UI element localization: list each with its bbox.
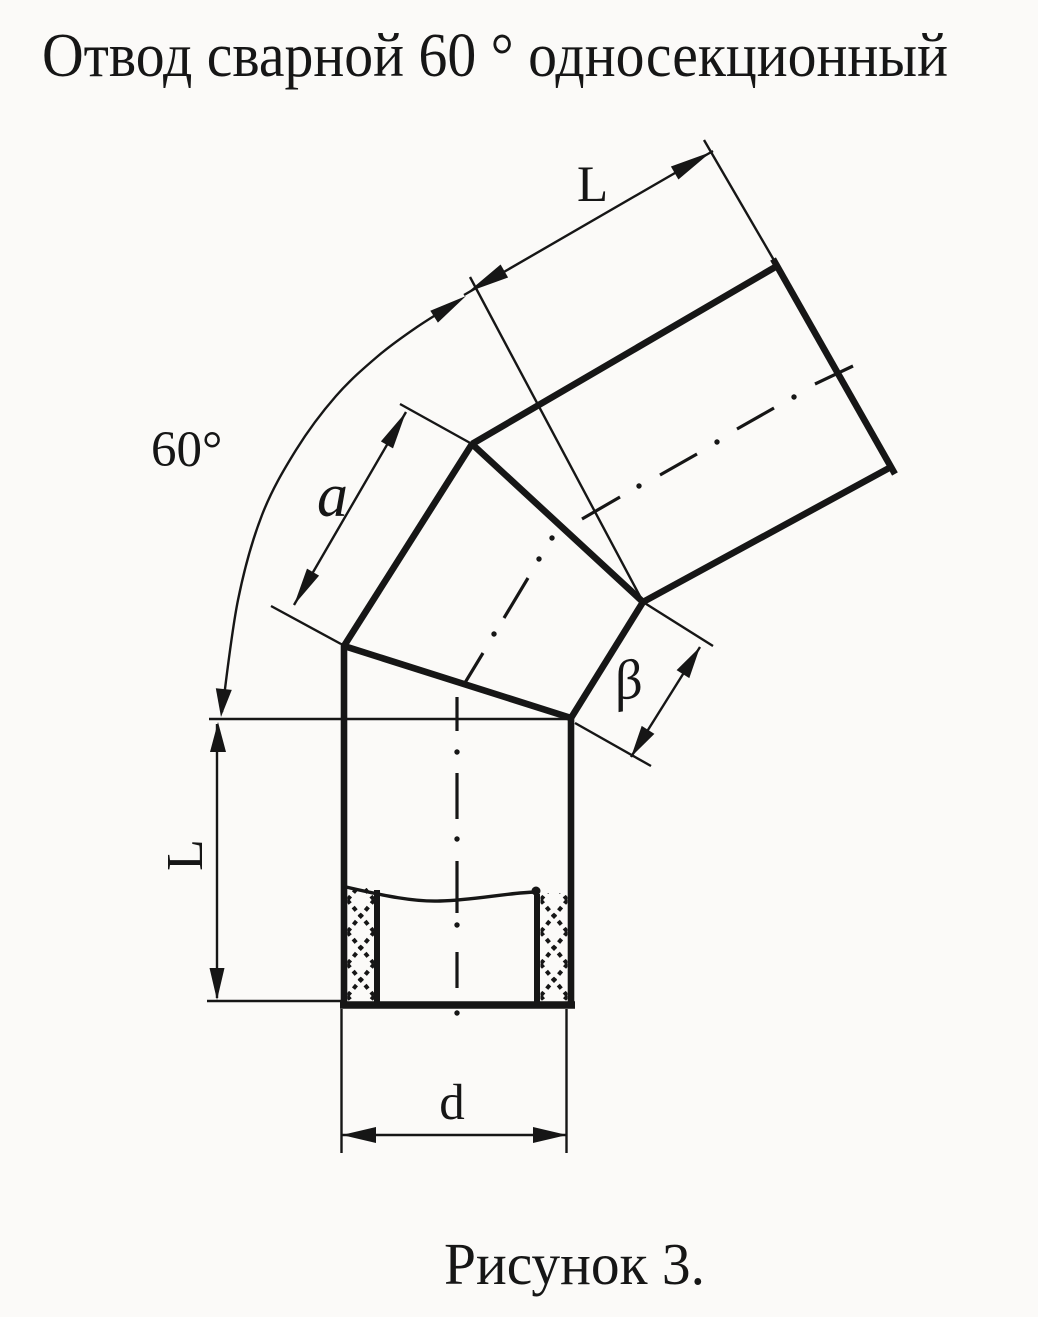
svg-text:L: L bbox=[157, 839, 214, 871]
svg-text:L: L bbox=[577, 157, 608, 213]
svg-text:60°: 60° bbox=[151, 422, 222, 478]
svg-text:Отвод сварной 60 ° односекцион: Отвод сварной 60 ° односекционный bbox=[42, 22, 948, 90]
svg-text:Рисунок 3.: Рисунок 3. bbox=[444, 1231, 705, 1297]
svg-text:d: d bbox=[439, 1075, 465, 1131]
svg-text:a: a bbox=[317, 462, 348, 530]
